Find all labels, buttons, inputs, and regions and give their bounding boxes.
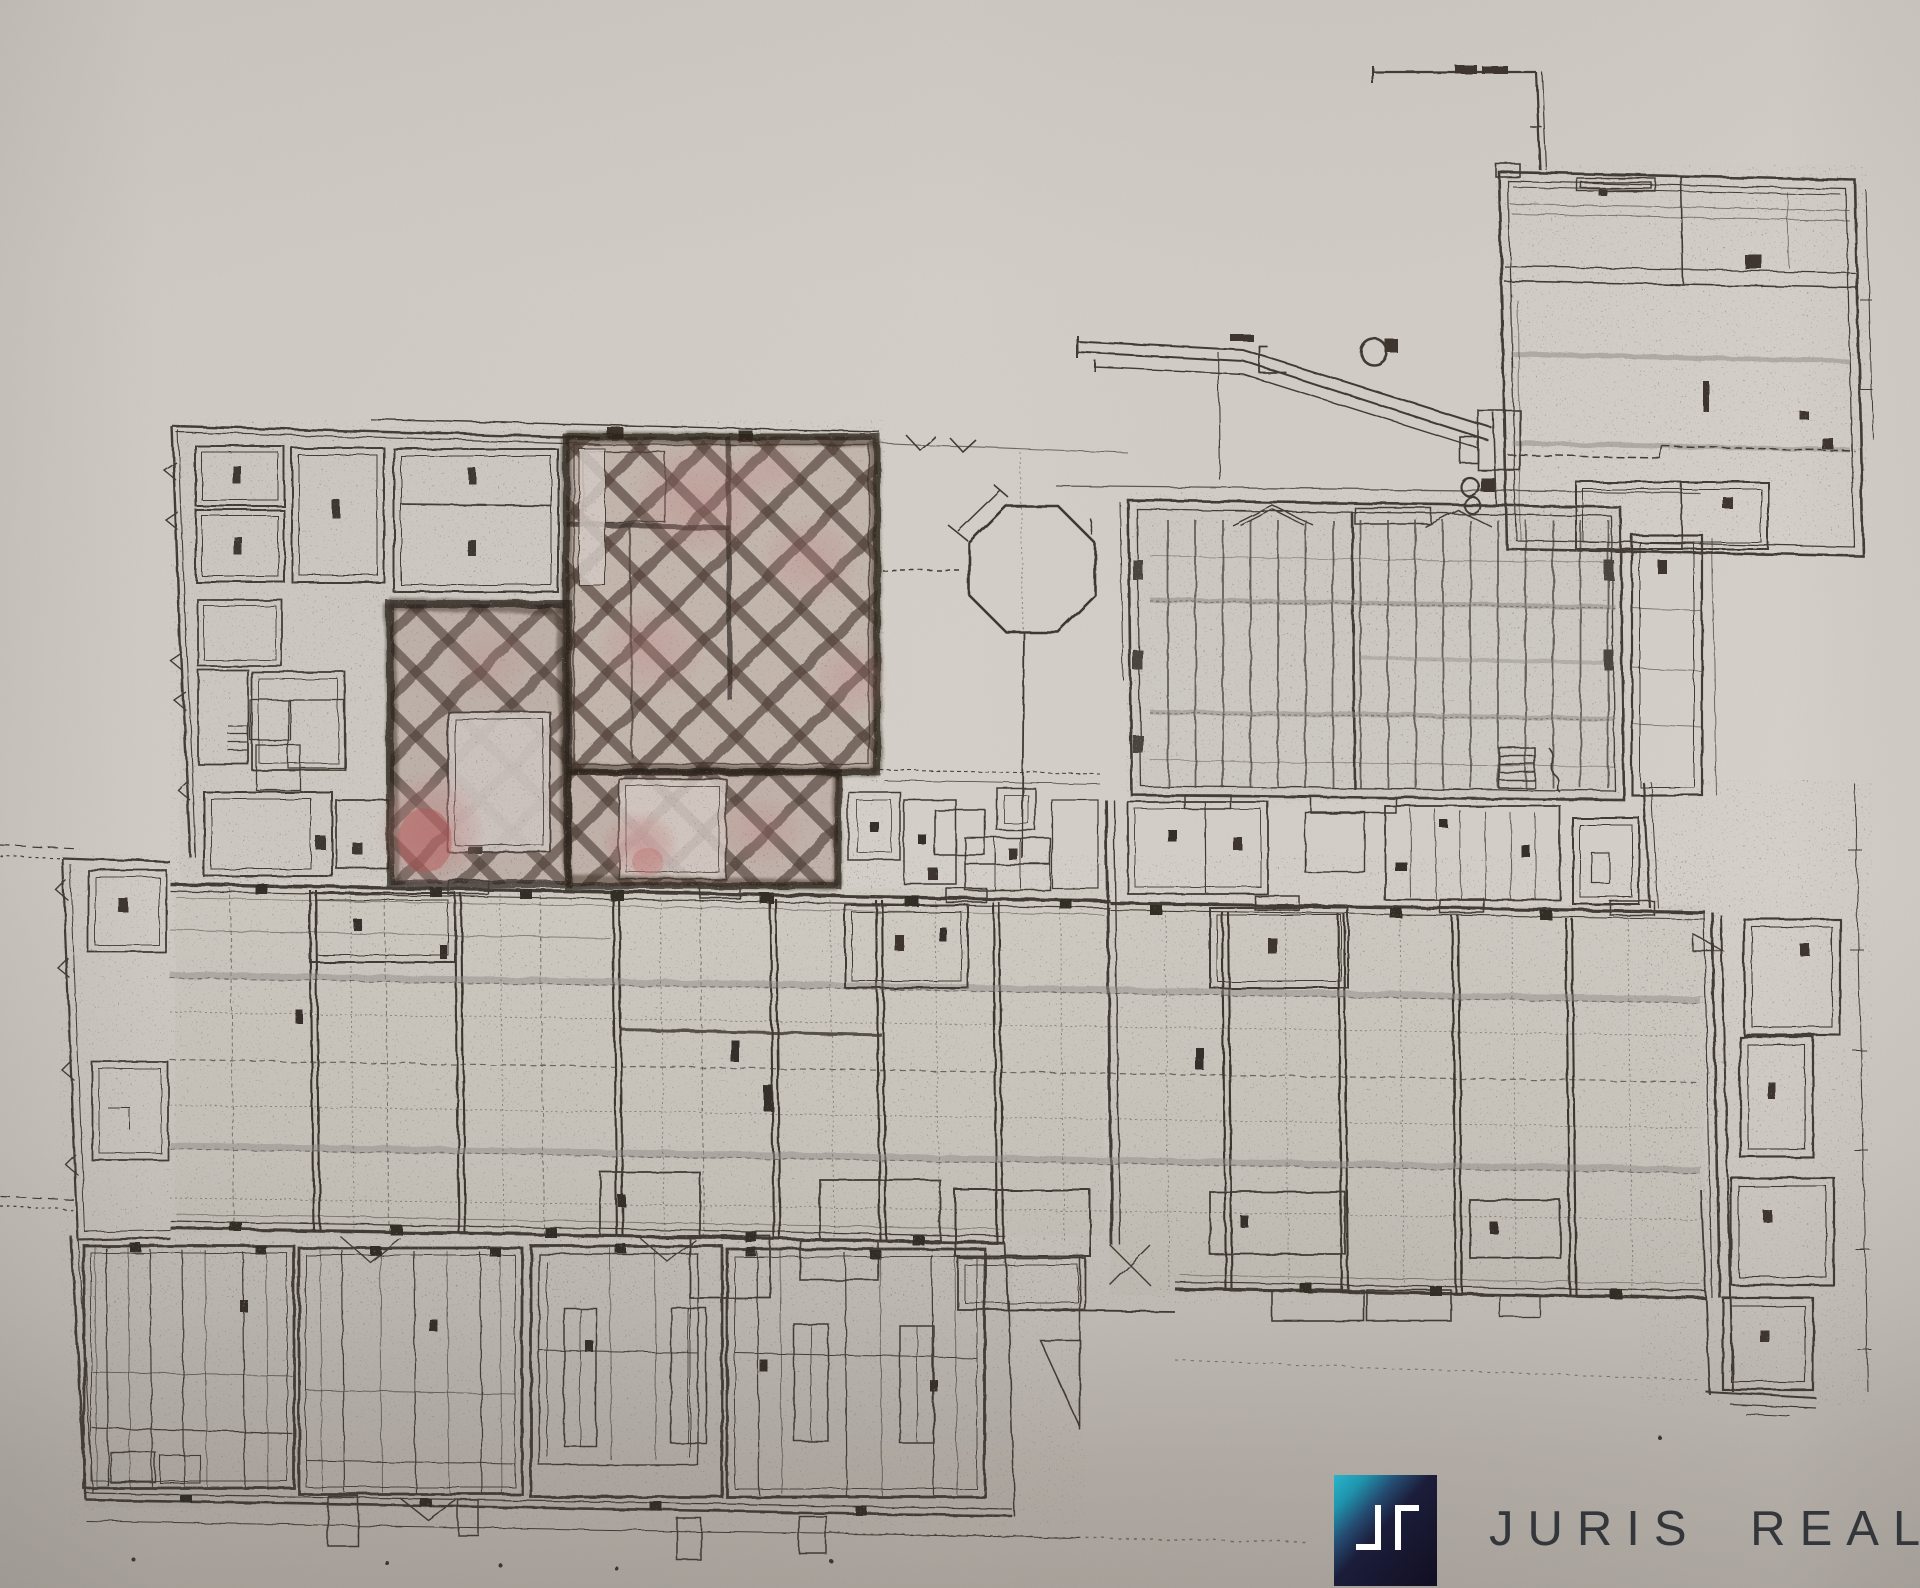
svg-text:JURIS REAL: JURIS REAL (1489, 1502, 1920, 1556)
